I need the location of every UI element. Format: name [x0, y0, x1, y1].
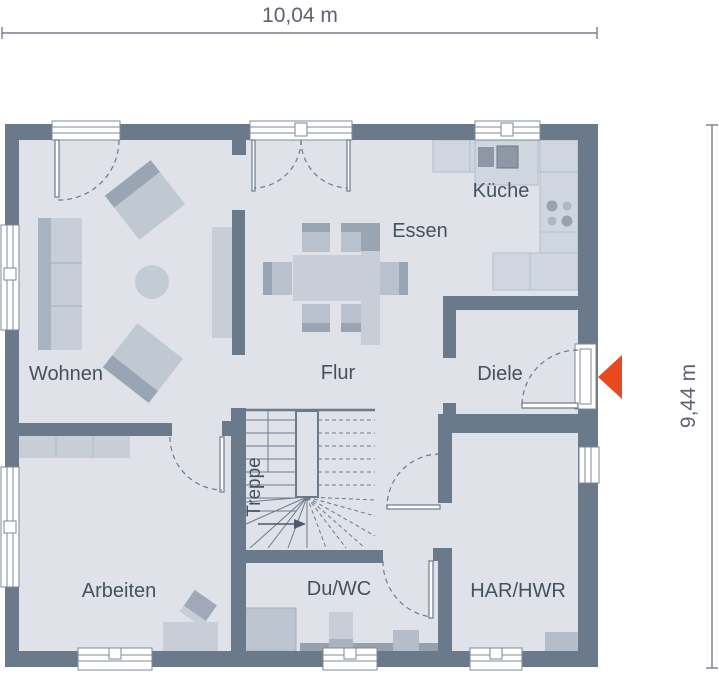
desk — [163, 622, 218, 651]
room-label-duwc: Du/WC — [307, 578, 371, 600]
floor-plan-drawing: Wohnen Essen Küche Flur Diele Arbeiten D… — [0, 0, 719, 683]
window-handle — [4, 521, 16, 533]
living-room-window — [1, 225, 19, 330]
room-label-diele: Diele — [477, 363, 523, 385]
height-dimension-label: 9,44 m — [677, 364, 700, 428]
window-handle — [490, 648, 502, 659]
office-window-left — [1, 467, 19, 587]
room-label-wohnen: Wohnen — [29, 363, 103, 385]
window-handle — [109, 648, 121, 659]
room-label-essen: Essen — [392, 220, 448, 242]
sink — [478, 147, 494, 167]
width-dimension-label: 10,04 m — [262, 4, 338, 27]
room-label-harhwr: HAR/HWR — [470, 580, 566, 602]
room-label-arbeiten: Arbeiten — [82, 580, 157, 602]
washbasin — [393, 630, 419, 651]
window-handle — [344, 648, 356, 659]
utility-unit — [545, 632, 578, 651]
room-label-treppe: Treppe — [244, 457, 265, 517]
tv-lowboard — [212, 227, 232, 338]
office-window-bottom — [78, 648, 152, 670]
bath-window-bottom — [323, 648, 377, 670]
toilet — [329, 612, 353, 639]
entrance-arrow-icon — [598, 355, 622, 399]
window-handle — [501, 123, 513, 136]
room-label-kueche: Küche — [473, 180, 530, 202]
kitchen-window — [475, 121, 540, 140]
window-handle — [295, 123, 307, 136]
utility-window-right — [579, 447, 599, 483]
dimension-right: 9,44 m — [677, 125, 718, 668]
sink — [497, 146, 518, 168]
window-handle — [4, 268, 16, 280]
shower — [243, 608, 296, 651]
dimension-top: 10,04 m — [2, 4, 597, 39]
room-label-flur: Flur — [321, 362, 356, 384]
utility-window-bottom — [470, 648, 522, 670]
floor-plan-page: Wohnen Essen Küche Flur Diele Arbeiten D… — [0, 0, 719, 683]
side-table — [135, 265, 169, 299]
tv-partition-wall — [232, 210, 245, 355]
